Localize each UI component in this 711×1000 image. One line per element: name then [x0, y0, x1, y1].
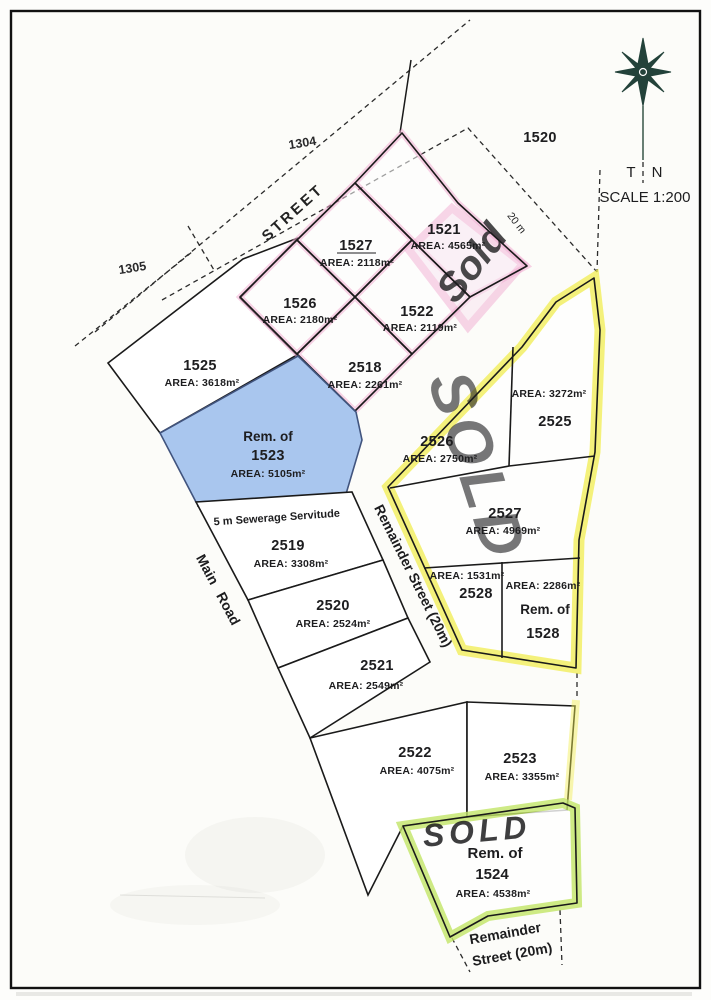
- lot-2525-number: 2525: [538, 414, 571, 430]
- lot-1527-area: AREA: 2118m²: [320, 257, 394, 269]
- lot-1528-number: 1528: [526, 626, 559, 642]
- lot-1526-number: 1526: [283, 296, 316, 312]
- lot-1527-number: 1527: [339, 238, 372, 254]
- lot-2526-number: 2526: [420, 434, 453, 450]
- lot-1526-area: AREA: 2180m²: [263, 314, 338, 326]
- lot-2527-area: AREA: 4969m²: [466, 525, 541, 537]
- true-north-n-label: N: [652, 164, 663, 181]
- lot-1521-number: 1521: [427, 222, 460, 238]
- lot-1523-prefix: Rem. of: [243, 429, 293, 444]
- lot-1521-area: AREA: 4565m²: [411, 240, 486, 252]
- lot-2523-number: 2523: [503, 751, 536, 767]
- lot-1523-number: 1523: [251, 448, 284, 464]
- lot-1522-area: AREA: 2119m²: [383, 322, 457, 334]
- survey-plan-map: Sold SOLD SOLD T N SCALE 1:200 1304 1305…: [0, 0, 711, 1000]
- lot-1524-prefix: Rem. of: [467, 845, 523, 862]
- scan-edge-artifact: [16, 992, 692, 996]
- lot-2520-area: AREA: 2524m²: [296, 618, 371, 630]
- true-north-t-label: T: [626, 164, 635, 181]
- lot-1524-area: AREA: 4538m²: [456, 888, 531, 900]
- lot-2526-area: AREA: 2750m²: [403, 453, 478, 465]
- lot-2527-number: 2527: [488, 506, 521, 522]
- lot-2518-area: AREA: 2261m²: [328, 379, 403, 391]
- survey-plan-page: Sold SOLD SOLD T N SCALE 1:200 1304 1305…: [0, 0, 711, 1000]
- lot-2522-number: 2522: [398, 745, 431, 761]
- lot-2521-number: 2521: [360, 658, 393, 674]
- lot-1525-area: AREA: 3618m²: [165, 377, 240, 389]
- lot-1528-prefix: Rem. of: [520, 602, 570, 617]
- lot-2528-number: 2528: [459, 586, 492, 602]
- lot-1523-area: AREA: 5105m²: [231, 468, 306, 480]
- scale-label: SCALE 1:200: [600, 189, 691, 206]
- lot-1524-number: 1524: [475, 866, 509, 883]
- lot-2519-number: 2519: [271, 538, 304, 554]
- lot-2523-area: AREA: 3355m²: [485, 771, 560, 783]
- lot-1525-number: 1525: [183, 358, 216, 374]
- parcel-1520-label: 1520: [523, 130, 556, 146]
- lot-2520-number: 2520: [316, 598, 349, 614]
- lot-2518-number: 2518: [348, 360, 381, 376]
- lot-1528-area: AREA: 2286m²: [506, 580, 581, 592]
- lot-2528-area: AREA: 1531m²: [430, 570, 505, 582]
- lot-2521-area: AREA: 2549m²: [329, 680, 404, 692]
- lot-2522-area: AREA: 4075m²: [380, 765, 455, 777]
- lot-2519-area: AREA: 3308m²: [254, 558, 329, 570]
- lot-2525-area: AREA: 3272m²: [512, 388, 587, 400]
- lot-1522-number: 1522: [400, 304, 433, 320]
